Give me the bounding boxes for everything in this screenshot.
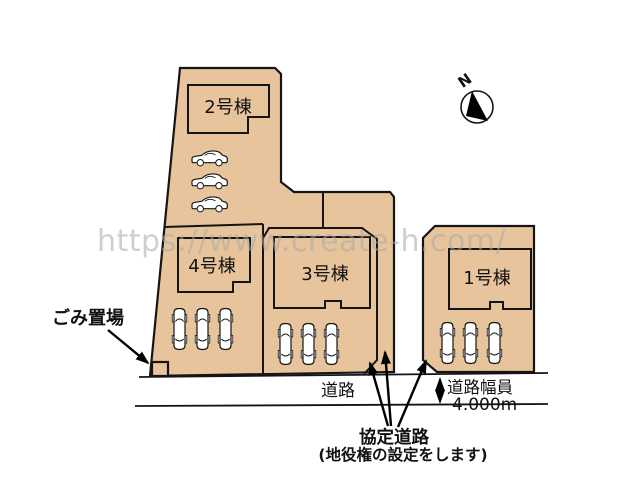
garbage-leader-arrow [108, 330, 148, 363]
car-icon [487, 323, 502, 364]
agreement-road-note: (地役権の設定をします) [318, 445, 487, 464]
car-icon [324, 324, 339, 365]
main-parcel [150, 68, 394, 376]
car-icon [218, 309, 233, 350]
site-plan: 2号棟 4号棟 3号棟 1号棟 https://www.create-h.com… [0, 0, 640, 480]
building-3-label: 3号棟 [301, 264, 348, 285]
road-label: 道路 [321, 381, 355, 401]
north-label: N [455, 70, 476, 92]
car-icon [301, 324, 316, 365]
building-4-label: 4号棟 [188, 256, 235, 277]
car-icon [195, 309, 210, 350]
building-1-label: 1号棟 [463, 268, 510, 289]
site-plan-canvas: 2号棟 4号棟 3号棟 1号棟 https://www.create-h.com… [0, 0, 640, 480]
building-2-label: 2号棟 [204, 97, 251, 118]
watermark-text: https://www.create-h.com/ [97, 224, 507, 259]
agreement-road-label: 協定道路 [359, 427, 429, 448]
car-icon [278, 324, 293, 365]
car-icon [463, 323, 478, 364]
agreement-arrow-lot1 [398, 361, 426, 427]
garbage-label: ごみ置場 [52, 307, 124, 329]
car-icon [172, 309, 187, 350]
garbage-area-box [152, 362, 168, 376]
north-compass-icon: N [455, 70, 493, 123]
road-width-value: 4.000m [452, 395, 517, 415]
car-icon [440, 323, 455, 364]
